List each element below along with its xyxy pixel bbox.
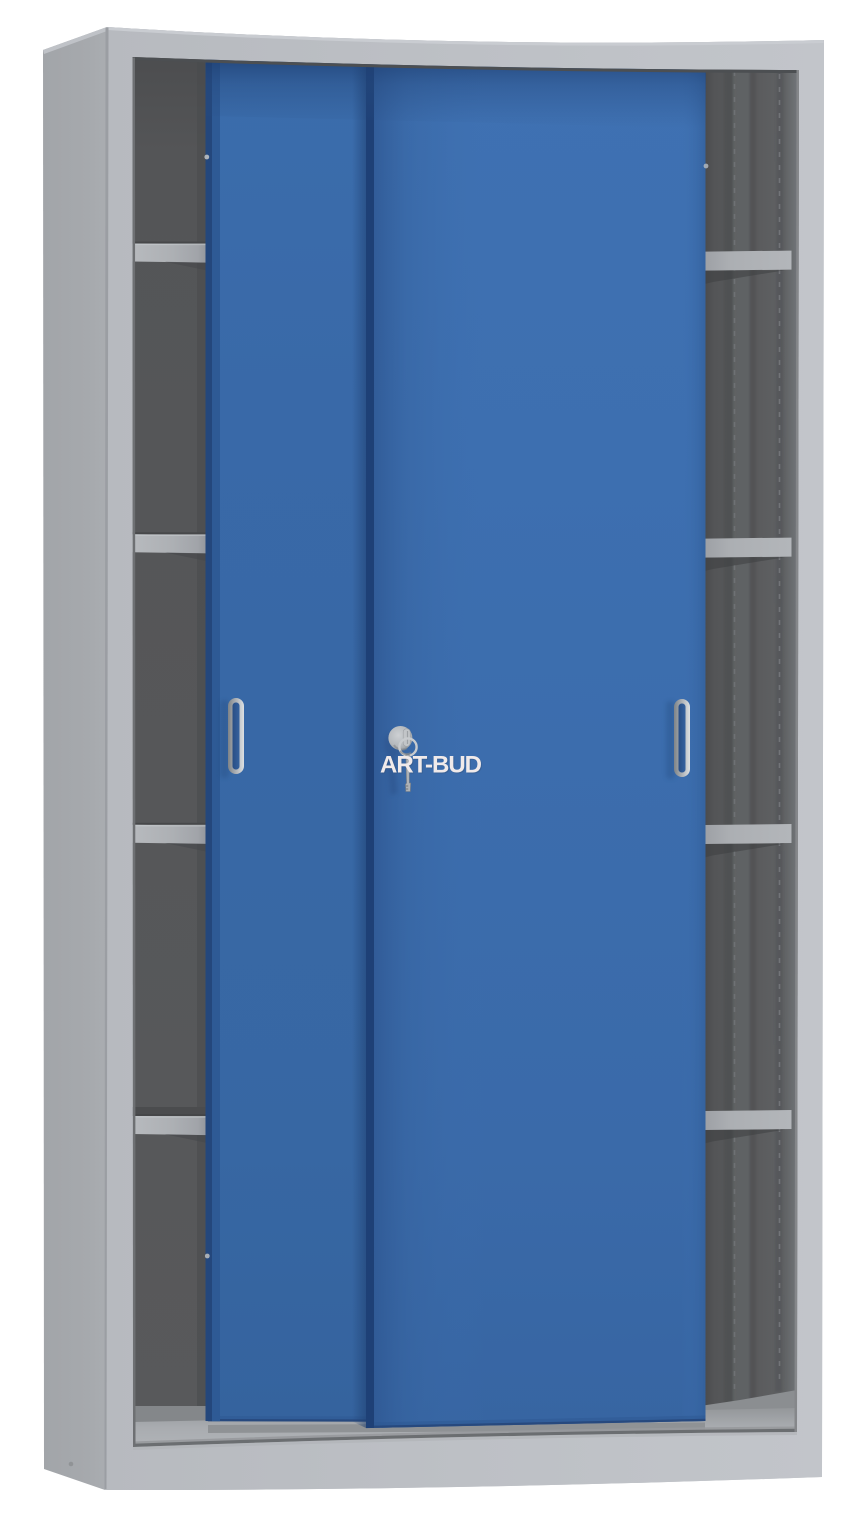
svg-text:ART-BUD: ART-BUD: [380, 752, 482, 779]
